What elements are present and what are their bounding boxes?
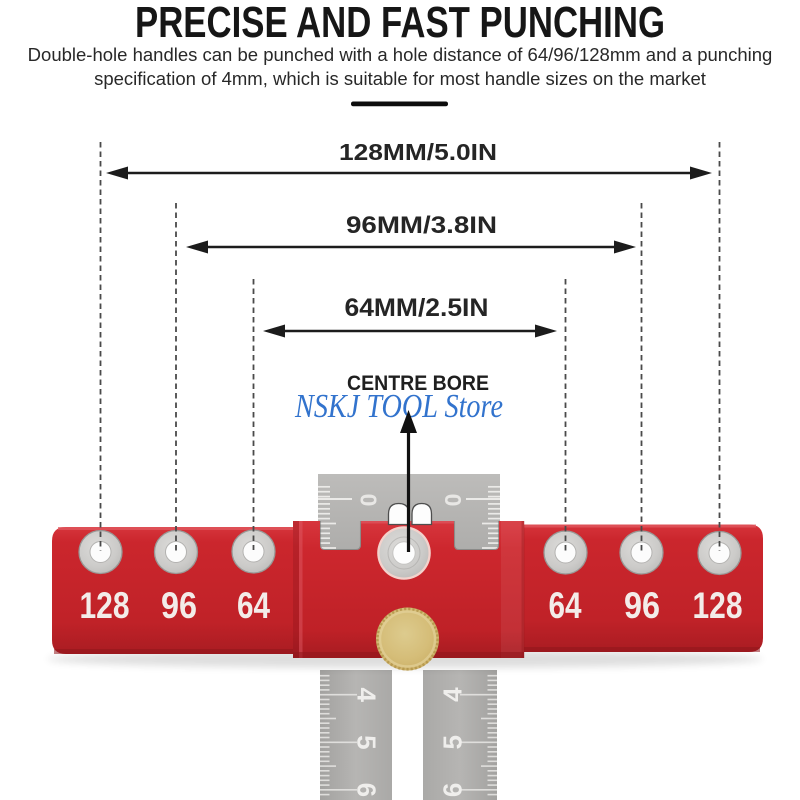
svg-text:4: 4 — [438, 687, 468, 702]
svg-text:6: 6 — [352, 783, 382, 797]
svg-text:6: 6 — [438, 783, 468, 797]
svg-text:5: 5 — [438, 735, 468, 749]
svg-text:96: 96 — [624, 585, 660, 626]
svg-text:64MM/2.5IN: 64MM/2.5IN — [345, 294, 489, 322]
svg-text:128: 128 — [80, 585, 130, 626]
svg-text:128: 128 — [693, 585, 743, 626]
svg-text:64: 64 — [549, 585, 582, 626]
svg-text:96: 96 — [161, 585, 197, 626]
svg-text:Double-hole handles can be pun: Double-hole handles can be punched with … — [28, 44, 773, 65]
svg-text:PRECISE AND FAST PUNCHING: PRECISE AND FAST PUNCHING — [135, 0, 665, 47]
svg-text:0: 0 — [355, 494, 381, 507]
svg-text:5: 5 — [352, 735, 382, 749]
svg-text:128MM/5.0IN: 128MM/5.0IN — [339, 139, 497, 165]
svg-text:96MM/3.8IN: 96MM/3.8IN — [346, 212, 497, 239]
svg-text:0: 0 — [440, 494, 466, 507]
svg-text:64: 64 — [237, 585, 270, 626]
svg-text:4: 4 — [352, 687, 382, 702]
svg-text:NSKJ TOOL Store: NSKJ TOOL Store — [294, 388, 503, 425]
svg-text:specification of 4mm, which is: specification of 4mm, which is suitable … — [94, 68, 706, 89]
